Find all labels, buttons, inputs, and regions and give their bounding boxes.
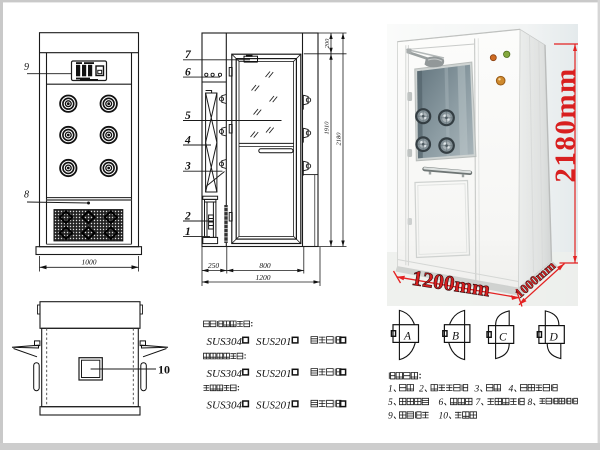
svg-text:1910: 1910 [323,121,330,135]
svg-text:B: B [452,331,459,343]
svg-text:7、: 7、 [476,398,490,408]
svg-text:D: D [549,332,559,344]
svg-text:3: 3 [184,161,191,173]
svg-text:5、: 5、 [388,398,402,408]
svg-text:2180: 2180 [335,132,342,146]
svg-text:1000: 1000 [82,258,97,267]
svg-text:SUS304: SUS304 [207,368,243,380]
svg-text:9、: 9、 [388,412,402,422]
svg-text:A: A [403,331,412,343]
svg-text:10: 10 [158,363,170,377]
svg-text:C: C [499,332,507,344]
svg-text:SUS304: SUS304 [207,336,243,348]
svg-text:SUS201: SUS201 [256,368,291,380]
svg-text:250: 250 [208,261,220,270]
svg-text:SUS201: SUS201 [256,400,291,412]
svg-text:8: 8 [24,190,29,201]
svg-text:1、: 1、 [388,384,402,394]
svg-text:2180mm: 2180mm [550,67,582,182]
svg-text:SUS201: SUS201 [256,336,291,348]
svg-text:10、: 10、 [439,412,458,422]
svg-text:1200: 1200 [256,273,271,282]
svg-text:9: 9 [24,62,29,73]
svg-text:SUS304: SUS304 [207,400,243,412]
svg-text:200: 200 [324,38,331,49]
svg-text:800: 800 [259,261,271,270]
